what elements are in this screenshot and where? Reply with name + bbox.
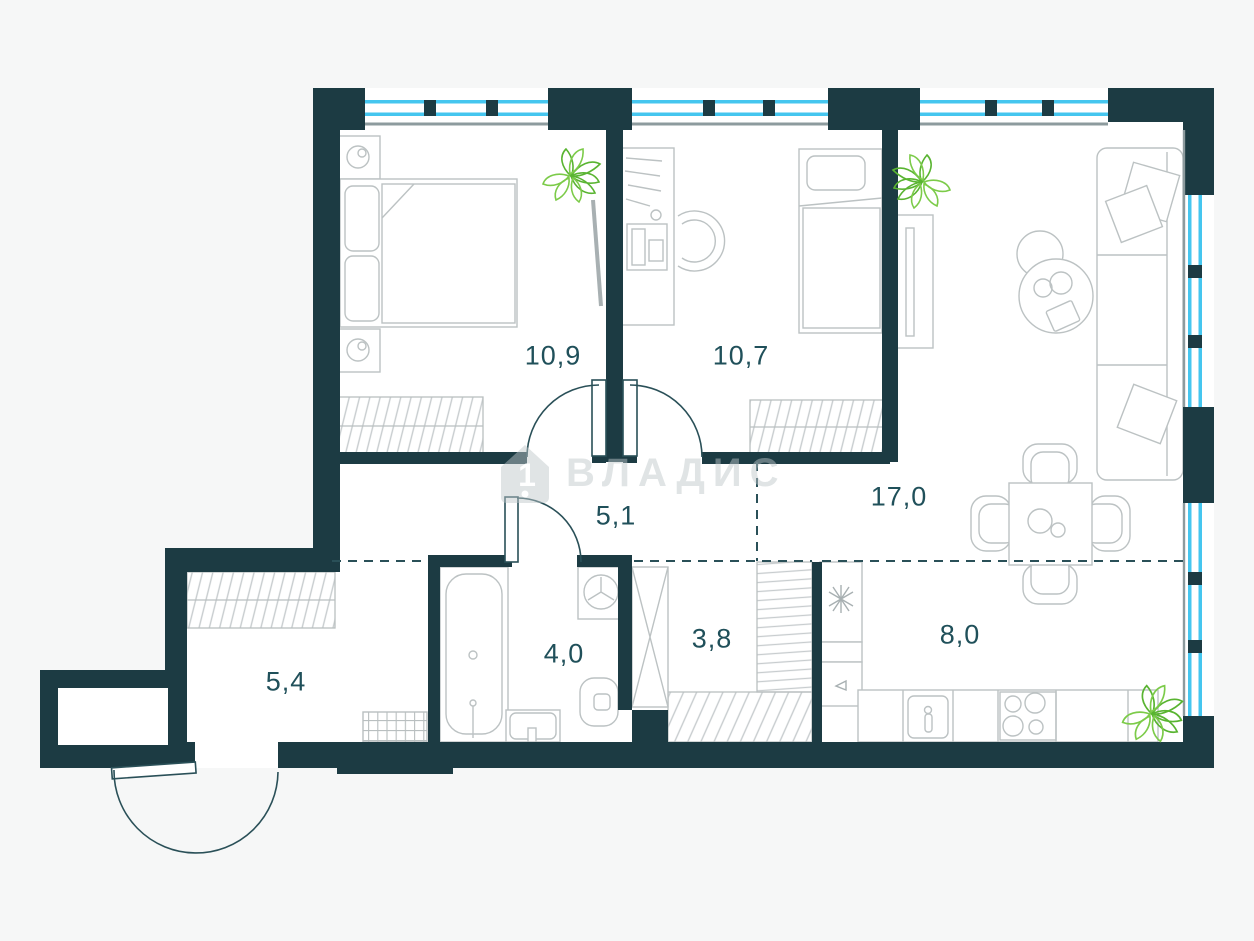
toilet [580,678,618,726]
window-top [920,100,1108,116]
window-right [1188,503,1202,716]
room-area-label-hallway: 5,1 [596,501,637,532]
niche-floor [58,688,168,745]
sofa [1097,148,1183,480]
window-top [365,100,548,116]
storage-floor-hatch [668,692,812,742]
kitchen-counter [858,690,1158,742]
room-area-label-storage: 3,8 [692,624,733,655]
doormat [363,712,427,742]
room-area-label-bathroom: 4,0 [544,639,585,670]
bedroom2-wardrobe [750,400,883,453]
vent-shaft [632,567,668,707]
room-area-label-entry-hall: 5,4 [266,667,307,698]
floor-plan-drawing [0,0,1254,941]
bedroom1-wardrobe [338,397,483,455]
entrance-door [112,762,278,853]
single-bed [799,149,882,333]
room-area-label-kitchen: 8,0 [940,620,981,651]
dining-table [1009,483,1092,565]
fridge-column [820,562,862,706]
bathroom-sink [506,710,560,742]
desk [621,148,674,325]
room-area-label-bedroom-1: 10,9 [525,341,582,372]
tv-console [897,215,933,348]
room-area-label-living-room: 17,0 [871,482,928,513]
room-area-label-bedroom-2: 10,7 [713,341,770,372]
window-right [1188,195,1202,407]
window-top [632,100,828,116]
washing-machine [578,567,624,619]
entry-wardrobe [187,572,335,628]
double-bed [340,179,517,327]
storage-shelf-hatch [757,562,812,692]
apartment-floor-plan: 10,9 10,7 17,0 5,1 4,0 3,8 8,0 5,4 1 ВЛА… [0,0,1254,941]
bathtub [440,567,508,742]
nightstand [336,136,380,179]
kitchen-sink [908,696,948,738]
nightstand [336,329,380,372]
